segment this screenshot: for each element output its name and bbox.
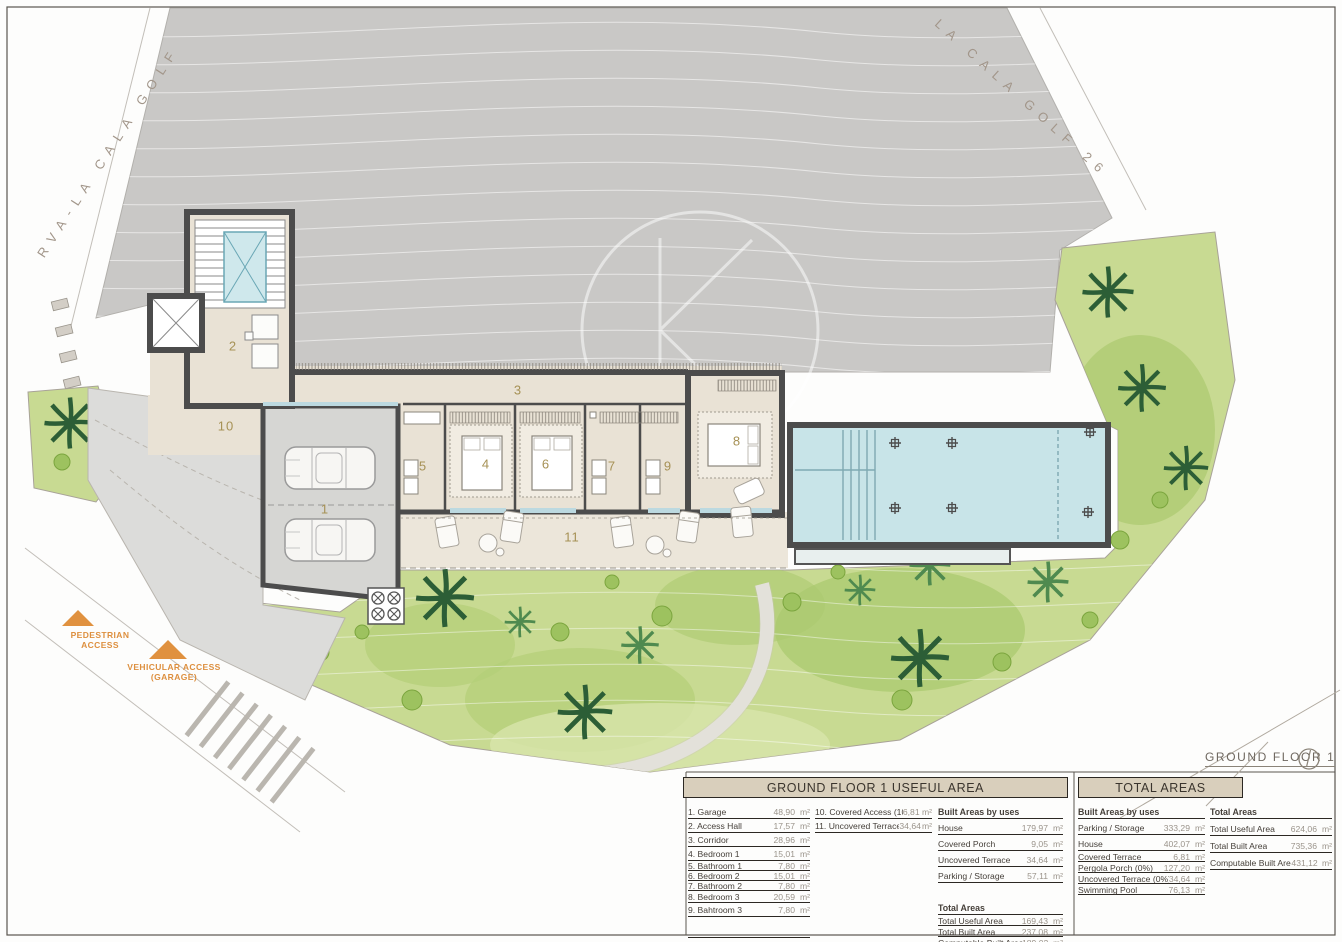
table-row: Computable Built Area431,12m²	[1210, 853, 1332, 870]
total-areas-table-title: TOTAL AREAS	[1078, 777, 1243, 798]
table-row: Total Built Area735,36m²	[1210, 836, 1332, 853]
room-number-bathroom1: 5	[419, 459, 427, 474]
table-row: Total Built Area237,08m²	[938, 926, 1063, 937]
ground-floor-extras-column: 10. Covered Access (100%)6,81m² 11. Unco…	[815, 805, 932, 833]
vehicular-access-label: VEHICULAR ACCESS (GARAGE)	[127, 662, 220, 682]
crosswalk	[187, 682, 314, 802]
pedestrian-arrow-icon	[62, 610, 94, 626]
room-number-bathroom2: 7	[608, 459, 616, 474]
room-number-bedroom1: 4	[482, 457, 490, 472]
table-row: Covered Terrace6,81m²	[1078, 851, 1205, 862]
ground-floor-built-column: Built Areas by uses House179,97m² Covere…	[938, 805, 1063, 942]
table-row: 1. Garage48,90m²	[688, 805, 810, 819]
room-number-terrace: 11	[564, 530, 580, 545]
table-row: Parking / Storage333,29m²	[1078, 819, 1205, 835]
table-row: Uncovered Terrace (0%)34,64m²	[1078, 873, 1205, 884]
room-number-garage: 1	[321, 502, 329, 517]
swimming-pool	[790, 425, 1108, 564]
table-row: 5. Bathroom 17,80m²	[688, 861, 810, 871]
room-number-bedroom2: 6	[542, 457, 550, 472]
table-row: 2. Access Hall17,57m²	[688, 819, 810, 833]
total-areas-table: TOTAL AREAS Built Areas by uses Parking …	[1078, 777, 1332, 938]
ground-floor-table-title: GROUND FLOOR 1 USEFUL AREA	[683, 777, 1068, 798]
built-areas-header: Built Areas by uses	[938, 805, 1063, 819]
vehicular-arrow-icon	[149, 640, 187, 659]
table-row: 6. Bedroom 215,01m²	[688, 871, 810, 881]
room-number-covered-access: 10	[218, 419, 234, 434]
car-1	[285, 447, 375, 489]
table-row: 9. Bahtroom 37,80m²	[688, 903, 810, 917]
table-row: House179,97m²	[938, 819, 1063, 835]
total-areas-header: Total Areas	[938, 901, 1063, 915]
garage-floor	[263, 406, 398, 600]
table-row: Swimming Pool76,13m²	[1078, 884, 1205, 895]
table-row: Covered Porch9,05m²	[938, 835, 1063, 851]
floor-marker-icon	[1297, 747, 1321, 771]
elevator	[150, 296, 202, 350]
ground-floor-rooms-column: 1. Garage48,90m² 2. Access Hall17,57m² 3…	[688, 805, 810, 938]
built-areas-header: Built Areas by uses	[1078, 805, 1205, 819]
table-row: Uncovered Terrace34,64m²	[938, 851, 1063, 867]
table-row: House402,07m²	[1078, 835, 1205, 851]
table-row: 10. Covered Access (100%)6,81m²	[815, 805, 932, 819]
total-totals-column: Total Areas Total Useful Area624,06m² To…	[1210, 805, 1332, 870]
pedestrian-access-label: PEDESTRIAN ACCESS	[71, 630, 130, 650]
total-built-column: Built Areas by uses Parking / Storage333…	[1078, 805, 1205, 895]
table-row: 3. Corridor28,96m²	[688, 833, 810, 847]
table-row: Parking / Storage57,11m²	[938, 867, 1063, 883]
table-row: 7. Bathroom 27,80m²	[688, 881, 810, 891]
total-areas-header: Total Areas	[1210, 805, 1332, 819]
table-row: 8. Bedroom 320,59m²	[688, 891, 810, 903]
room-number-access-hall: 2	[229, 339, 237, 354]
table-row: Computable Built Area189,02m²	[938, 937, 1063, 942]
table-row: Total Useful Area624,06m²	[1210, 819, 1332, 836]
corridor-glazing	[296, 363, 782, 370]
room-number-bedroom3: 8	[733, 434, 741, 449]
table-row: 11. Uncovered Terrace 1 (0%)34,64m²	[815, 819, 932, 833]
car-2	[285, 519, 375, 561]
table-row: Total Useful Area169,43m²	[938, 915, 1063, 926]
room-number-corridor: 3	[514, 383, 522, 398]
pool-overflow	[795, 549, 1010, 564]
room-number-bathroom3: 9	[664, 459, 672, 474]
table-row: Pergola Porch (0%)127,20m²	[1078, 862, 1205, 873]
table-row: 4. Bedroom 115,01m²	[688, 847, 810, 861]
drawing-sheet: RVA-LA CALA GOLF LA CALA GOLF 26 PEDESTR…	[0, 0, 1342, 942]
ground-floor-area-table: GROUND FLOOR 1 USEFUL AREA 1. Garage48,9…	[683, 777, 1068, 938]
